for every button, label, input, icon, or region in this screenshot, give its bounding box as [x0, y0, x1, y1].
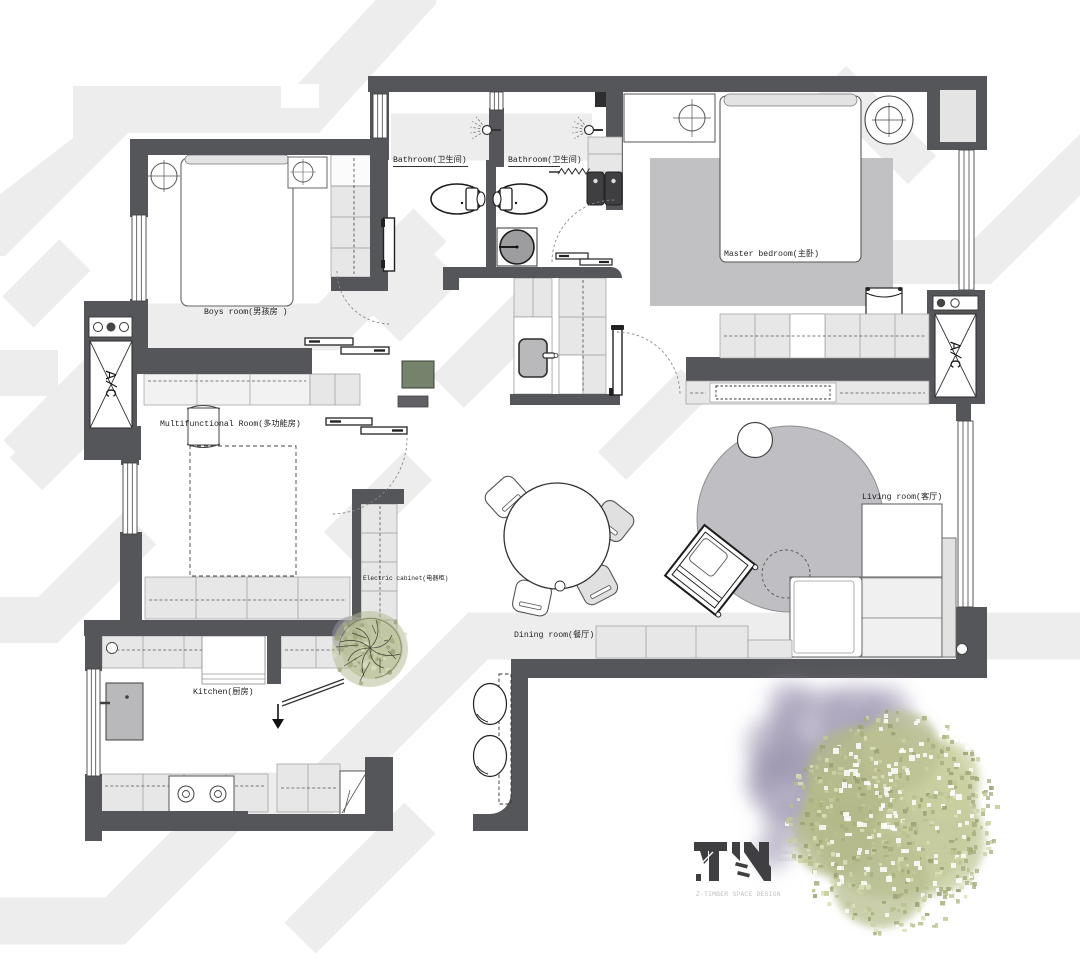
svg-text:Z-TIMBER: Z-TIMBER [778, 843, 803, 849]
svg-text:Z-TIMBER SPACE DESIGN: Z-TIMBER SPACE DESIGN [696, 891, 781, 898]
svg-text:SPACE: SPACE [778, 850, 794, 856]
svg-text:Living room(客厅): Living room(客厅) [862, 491, 942, 502]
svg-text:Boys room(男孩房 ): Boys room(男孩房 ) [204, 306, 288, 317]
svg-text:A/C: A/C [101, 370, 118, 397]
svg-text:Multifunctional Room(多功能房): Multifunctional Room(多功能房) [160, 418, 301, 429]
svg-text:Master bedroom(主卧): Master bedroom(主卧) [724, 248, 819, 259]
svg-text:Electric cabinet(电器柜): Electric cabinet(电器柜) [363, 574, 448, 582]
svg-text:Kitchen(厨房): Kitchen(厨房) [193, 686, 254, 697]
svg-text:Bathroom(卫生间): Bathroom(卫生间) [393, 154, 467, 165]
svg-text:DESIGN: DESIGN [778, 857, 797, 863]
svg-text:A/C: A/C [946, 341, 963, 368]
svg-text:Bathroom(卫生间): Bathroom(卫生间) [508, 154, 582, 165]
svg-text:Dining room(餐厅): Dining room(餐厅) [514, 630, 594, 640]
